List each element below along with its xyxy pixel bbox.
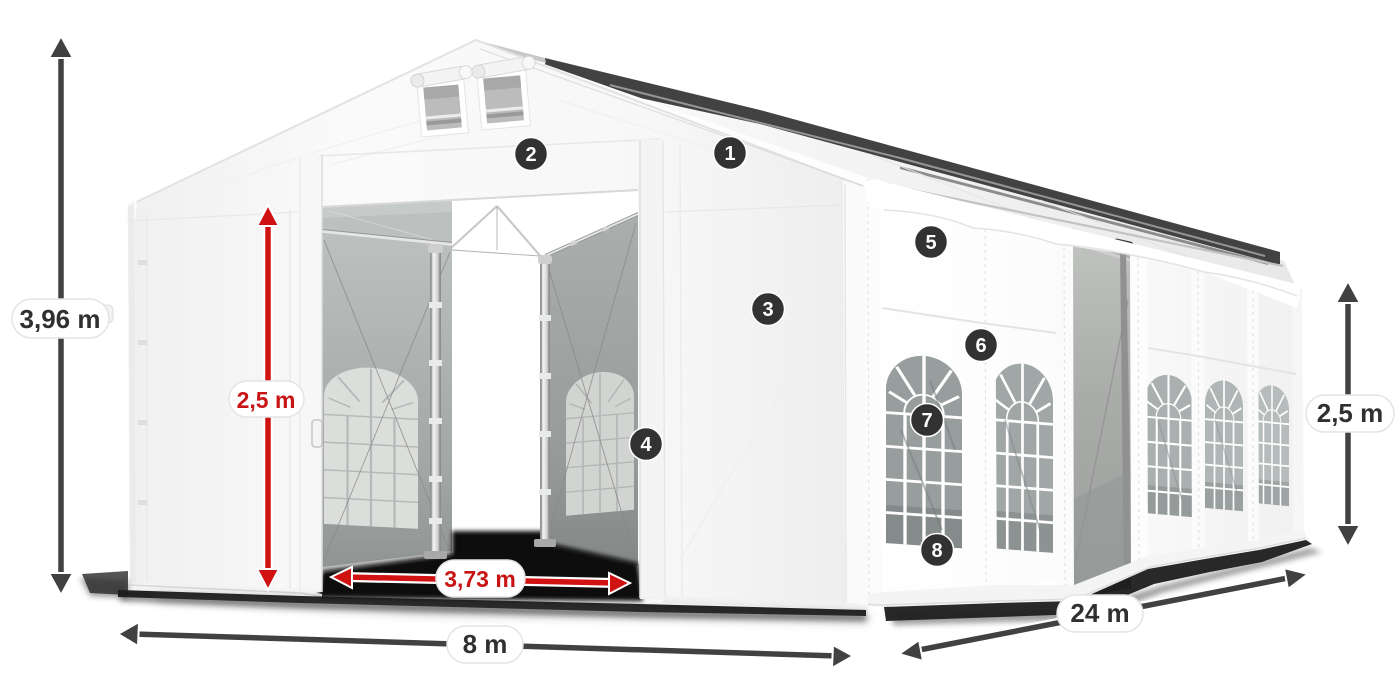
svg-text:3,73 m: 3,73 m [444, 566, 516, 592]
svg-text:8 m: 8 m [463, 629, 508, 659]
svg-text:3,96 m: 3,96 m [20, 304, 101, 334]
svg-text:6: 6 [975, 335, 986, 357]
svg-text:2,5 m: 2,5 m [237, 387, 296, 413]
svg-text:4: 4 [640, 434, 652, 456]
svg-text:24 m: 24 m [1070, 598, 1129, 628]
svg-text:2: 2 [525, 144, 536, 166]
svg-text:8: 8 [931, 540, 942, 562]
svg-text:1: 1 [724, 143, 735, 165]
svg-text:3: 3 [762, 299, 773, 321]
svg-text:7: 7 [921, 410, 932, 432]
svg-text:5: 5 [925, 232, 936, 254]
svg-text:2,5 m: 2,5 m [1317, 398, 1384, 428]
